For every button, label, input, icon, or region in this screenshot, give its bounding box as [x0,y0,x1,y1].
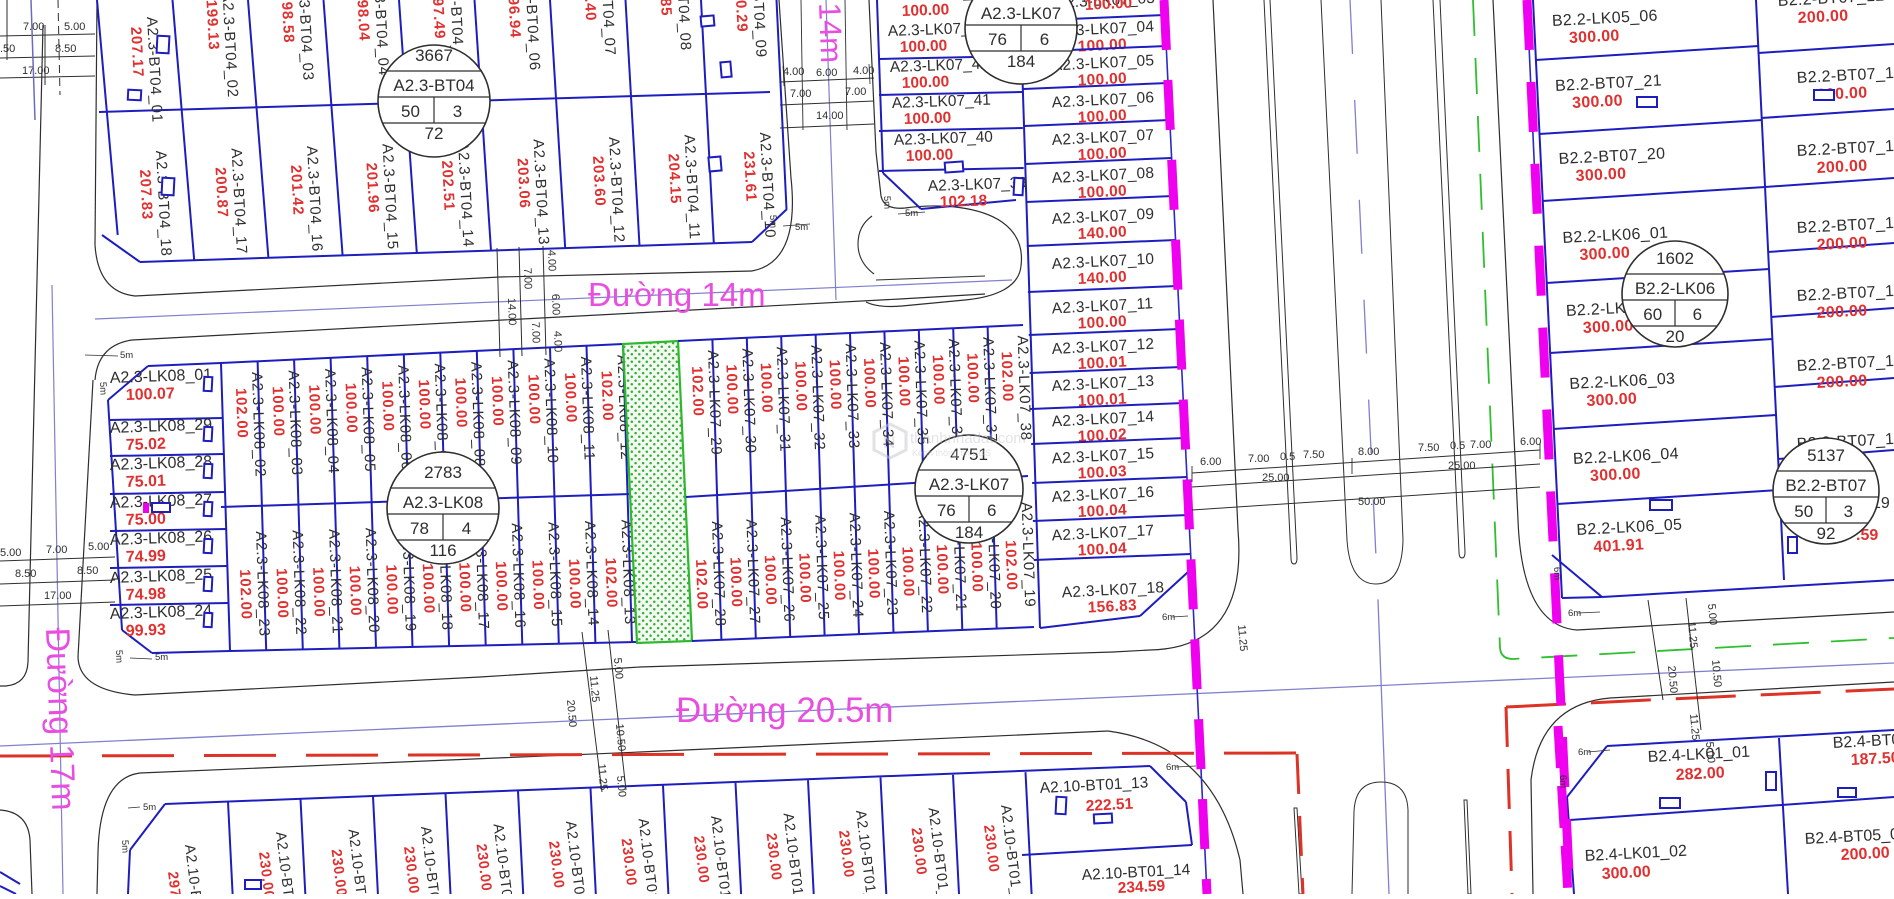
svg-text:20.50: 20.50 [1665,665,1679,693]
svg-text:203.06: 203.06 [514,158,534,210]
svg-text:B2.2-BT07: B2.2-BT07 [1785,476,1866,495]
svg-text:6: 6 [987,501,996,520]
svg-text:300.00: 300.00 [1572,92,1624,112]
svg-text:7.00: 7.00 [845,86,866,98]
svg-text:11.25: 11.25 [1685,621,1699,649]
svg-text:140.00: 140.00 [1077,223,1127,243]
svg-text:4.00: 4.00 [551,331,564,353]
svg-text:17.00: 17.00 [22,65,50,77]
svg-text:10.50: 10.50 [1709,659,1723,687]
svg-text:200.00: 200.00 [1816,234,1868,254]
svg-text:102.00: 102.00 [232,388,251,439]
svg-text:100.00: 100.00 [561,372,580,423]
svg-text:0.5: 0.5 [1450,440,1465,452]
svg-text:100.00: 100.00 [1077,313,1127,333]
svg-text:8.50: 8.50 [15,568,36,580]
svg-text:7.00: 7.00 [529,322,542,344]
svg-text:3: 3 [1844,502,1853,521]
svg-text:7.50: 7.50 [1303,449,1324,461]
svg-text:116: 116 [429,541,456,560]
svg-text:5.00: 5.00 [614,775,628,797]
svg-text:100.00: 100.00 [902,1,950,20]
svg-text:97.49: 97.49 [429,0,448,40]
svg-text:6m: 6m [1162,612,1175,623]
svg-text:A2.3-LK08_26: A2.3-LK08_26 [110,528,213,549]
svg-text:B2.2-LK06: B2.2-LK06 [1635,279,1715,298]
svg-text:202.51: 202.51 [438,160,458,212]
svg-text:4.00: 4.00 [545,250,558,272]
svg-text:6: 6 [1693,305,1702,324]
svg-text:Kênh thông tin BĐS: Kênh thông tin BĐS [912,448,991,458]
svg-text:5.00: 5.00 [88,541,109,553]
svg-text:4: 4 [462,519,471,538]
svg-text:92: 92 [1817,524,1836,543]
svg-text:100.00: 100.00 [346,565,365,616]
svg-text:102.00: 102.00 [688,366,707,417]
svg-text:3: 3 [453,102,462,121]
svg-text:100.00: 100.00 [722,364,741,415]
svg-text:7.00: 7.00 [521,268,534,290]
svg-text:8.50: 8.50 [77,565,98,577]
svg-text:204.15: 204.15 [665,153,685,205]
svg-text:102.00: 102.00 [1002,540,1021,591]
svg-text:100.00: 100.00 [524,374,543,425]
svg-text:200.00: 200.00 [1816,157,1868,177]
svg-text:4.00: 4.00 [853,65,874,77]
svg-text:100.00: 100.00 [967,542,986,593]
svg-text:156.83: 156.83 [1087,597,1137,617]
svg-text:300.00: 300.00 [1601,863,1651,883]
svg-text:96.94: 96.94 [505,0,524,39]
svg-text:100.00: 100.00 [378,381,397,432]
svg-text:102.00: 102.00 [998,351,1017,402]
svg-text:N: N [883,433,895,452]
svg-text:75.02: 75.02 [126,436,167,454]
svg-text:A2.3-LK08: A2.3-LK08 [403,493,483,512]
svg-text:100.00: 100.00 [900,37,948,56]
svg-text:100.00: 100.00 [488,376,507,427]
svg-text:200.00: 200.00 [1797,7,1849,27]
svg-text:100.00: 100.00 [904,109,952,128]
svg-text:2783: 2783 [424,463,462,482]
svg-text:0.5: 0.5 [1280,451,1295,463]
svg-text:14.00: 14.00 [505,298,518,326]
svg-text:222.51: 222.51 [1085,796,1134,815]
svg-text:100.00: 100.00 [963,353,982,404]
svg-text:102.00: 102.00 [598,370,617,421]
svg-text:200.00: 200.00 [1816,302,1868,322]
svg-text:78: 78 [410,519,429,538]
svg-text:96.40: 96.40 [580,0,599,22]
svg-text:17.00: 17.00 [44,590,72,602]
svg-text:282.00: 282.00 [1675,764,1725,784]
svg-text:7.00: 7.00 [1470,439,1491,451]
svg-text:184: 184 [955,523,983,542]
svg-text:200.00: 200.00 [1840,844,1890,864]
svg-text:20.50: 20.50 [564,699,578,727]
svg-text:1602: 1602 [1656,249,1694,268]
svg-text:100.00: 100.00 [757,362,776,413]
svg-text:50: 50 [401,102,420,121]
svg-text:7.00: 7.00 [46,544,67,556]
svg-text:5.00: 5.00 [1703,741,1717,763]
svg-text:102.00: 102.00 [602,557,621,608]
svg-text:5.00: 5.00 [0,547,21,559]
svg-text:234.59: 234.59 [1117,878,1166,894]
svg-text:100.00: 100.00 [902,73,950,92]
svg-text:300.00: 300.00 [1575,165,1627,185]
svg-text:199.13: 199.13 [203,0,223,51]
svg-text:100.00: 100.00 [826,359,845,410]
svg-text:A2.3-LK07: A2.3-LK07 [929,475,1009,494]
svg-text:.50: .50 [0,43,15,55]
svg-text:100.00: 100.00 [455,562,474,613]
svg-text:A2.3-LK08_25: A2.3-LK08_25 [110,566,213,587]
svg-text:6: 6 [1040,30,1049,49]
svg-text:120.29: 120.29 [731,0,751,33]
svg-text:50: 50 [1794,502,1813,521]
svg-text:100.00: 100.00 [309,567,328,618]
svg-text:100.00: 100.00 [830,550,849,601]
svg-text:A2.3-LK08_24: A2.3-LK08_24 [110,602,213,623]
svg-text:100.00: 100.00 [492,561,511,612]
svg-text:207.83: 207.83 [136,169,156,221]
svg-text:207.17: 207.17 [127,26,147,78]
svg-text:5m: 5m [143,802,156,813]
svg-text:6m: 6m [1568,608,1581,619]
svg-text:10.50: 10.50 [613,723,627,751]
svg-text:102.18: 102.18 [940,192,988,211]
svg-text:5.00: 5.00 [1705,603,1719,625]
svg-text:140.00: 140.00 [1077,268,1127,288]
svg-text:7.00: 7.00 [1248,453,1269,465]
svg-text:5m: 5m [767,215,778,229]
svg-text:76: 76 [937,501,956,520]
svg-text:100.00: 100.00 [382,564,401,615]
svg-text:401.91: 401.91 [1593,536,1645,556]
svg-text:100.00: 100.00 [305,384,324,435]
svg-text:100.00: 100.00 [864,548,883,599]
svg-text:8.00: 8.00 [1358,446,1379,458]
svg-text:5m: 5m [120,350,133,361]
svg-text:98.58: 98.58 [278,1,297,43]
svg-text:76: 76 [988,30,1007,49]
svg-text:Đường 14m: Đường 14m [588,276,766,313]
svg-text:100.00: 100.00 [415,379,434,430]
svg-text:14m: 14m [812,2,849,63]
svg-text:300.00: 300.00 [1590,465,1642,485]
svg-text:A2.3-LK08_01: A2.3-LK08_01 [110,366,213,387]
svg-text:74.98: 74.98 [126,586,167,604]
svg-text:100.00: 100.00 [791,361,810,412]
svg-text:74.99: 74.99 [126,548,167,566]
svg-text:11.25: 11.25 [587,675,601,703]
svg-text:6.00: 6.00 [1520,436,1541,448]
svg-text:203.60: 203.60 [589,155,609,207]
svg-text:thanhnhadat.com: thanhnhadat.com [910,430,1026,447]
svg-text:201.42: 201.42 [287,164,307,216]
svg-text:95.85: 95.85 [656,0,675,17]
svg-text:6.00: 6.00 [549,294,562,316]
svg-text:5.00: 5.00 [611,657,625,679]
svg-text:6m: 6m [1166,762,1179,773]
svg-text:100.00: 100.00 [795,553,814,604]
svg-text:231.61: 231.61 [740,151,760,203]
svg-text:100.00: 100.00 [1077,36,1127,56]
svg-text:50.00: 50.00 [1358,496,1386,508]
svg-text:6.00: 6.00 [816,67,837,79]
svg-text:5m: 5m [113,650,124,664]
svg-text:75.00: 75.00 [126,511,167,529]
svg-text:5137: 5137 [1807,446,1845,465]
svg-text:300.00: 300.00 [1569,27,1621,47]
svg-text:100.00: 100.00 [419,563,438,614]
svg-text:102.00: 102.00 [692,559,711,610]
svg-text:8.50: 8.50 [55,43,76,55]
svg-text:300.00: 300.00 [1583,317,1635,337]
svg-text:7.00: 7.00 [790,88,811,100]
svg-text:4.00: 4.00 [783,66,804,78]
svg-text:A2.3-LK08_29: A2.3-LK08_29 [110,416,213,437]
svg-text:14.00: 14.00 [816,110,844,122]
svg-text:100.00: 100.00 [565,558,584,609]
svg-text:6m: 6m [1557,775,1568,789]
svg-text:6m: 6m [1578,747,1591,758]
svg-text:75.01: 75.01 [126,473,167,491]
svg-text:7.00: 7.00 [23,21,44,33]
svg-text:100.00: 100.00 [761,555,780,606]
svg-text:A2.3-BT04: A2.3-BT04 [393,76,474,95]
svg-text:184: 184 [1007,52,1035,71]
svg-text:100.00: 100.00 [898,546,917,597]
svg-text:99.93: 99.93 [126,622,167,640]
svg-text:5m: 5m [881,196,892,210]
svg-text:11.25: 11.25 [1235,624,1249,652]
svg-text:100.00: 100.00 [894,356,913,407]
svg-text:25.00: 25.00 [1262,472,1290,484]
svg-text:100.00: 100.00 [528,560,547,611]
svg-text:300.00: 300.00 [1586,390,1638,410]
svg-text:102.00: 102.00 [236,569,255,620]
svg-text:201.96: 201.96 [363,162,383,214]
svg-text:187.50: 187.50 [1850,749,1894,769]
svg-text:A2.3-LK07: A2.3-LK07 [981,4,1061,23]
svg-text:11.25: 11.25 [595,763,609,791]
svg-text:100.00: 100.00 [451,377,470,428]
svg-text:72: 72 [425,124,444,143]
svg-text:Đường 20.5m: Đường 20.5m [676,691,894,730]
svg-text:5m: 5m [155,652,168,663]
svg-text:60: 60 [1643,305,1662,324]
svg-text:5m: 5m [119,840,130,854]
svg-text:7.50: 7.50 [1418,442,1439,454]
svg-text:100.07: 100.07 [126,385,176,404]
svg-text:100.00: 100.00 [273,568,292,619]
svg-text:6.00: 6.00 [1200,456,1221,468]
svg-text:100.00: 100.00 [929,354,948,405]
svg-text:25.00: 25.00 [1448,460,1476,472]
svg-text:11.25: 11.25 [1687,713,1701,741]
svg-text:3667: 3667 [415,46,453,65]
svg-text:A2.3-LK08_28: A2.3-LK08_28 [110,453,213,474]
svg-text:100.00: 100.00 [269,386,288,437]
svg-text:5.00: 5.00 [64,21,85,33]
svg-text:100.00: 100.00 [342,383,361,434]
svg-text:100.00: 100.00 [933,544,952,595]
svg-text:100.00: 100.00 [726,557,745,608]
svg-text:200.00: 200.00 [1816,372,1868,392]
svg-text:5m: 5m [795,222,808,233]
svg-text:Đường 17m: Đường 17m [38,627,82,811]
svg-text:200.87: 200.87 [212,167,232,219]
svg-text:6m: 6m [1551,567,1562,581]
svg-text:20: 20 [1666,327,1685,346]
svg-text:300.00: 300.00 [1579,244,1631,264]
svg-text:98.04: 98.04 [354,0,373,42]
svg-text:100.00: 100.00 [860,358,879,409]
svg-text:5m: 5m [97,382,108,396]
